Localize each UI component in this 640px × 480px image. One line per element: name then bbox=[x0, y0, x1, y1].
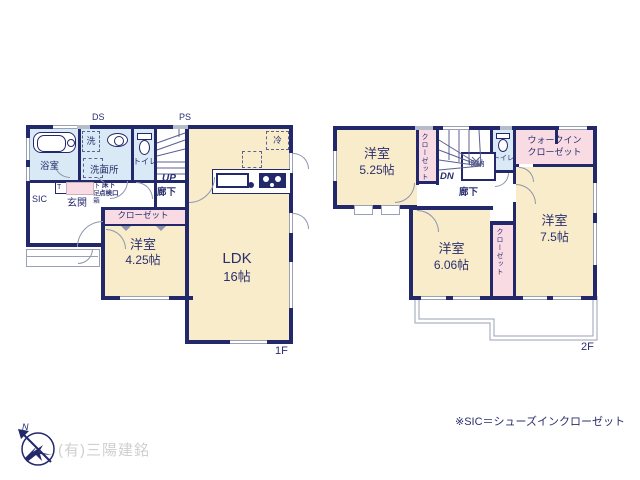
window bbox=[453, 296, 480, 300]
ldk-name: LDK bbox=[185, 251, 289, 266]
balcony-outline bbox=[409, 296, 601, 346]
hall2f-label: 廊下 bbox=[459, 188, 478, 198]
burner bbox=[275, 176, 281, 182]
duct bbox=[500, 126, 512, 130]
hall-door-arc bbox=[136, 182, 153, 199]
closet-label: クローゼット bbox=[101, 211, 185, 220]
up-label: UP bbox=[162, 174, 176, 184]
ldk-exterior-door-arc bbox=[293, 213, 309, 229]
room425-size: 4.25帖 bbox=[101, 254, 185, 266]
room606-name: 洋室 bbox=[413, 242, 490, 255]
wall bbox=[490, 221, 516, 225]
window bbox=[593, 183, 597, 213]
ds-duct bbox=[75, 125, 90, 129]
compass-icon: N bbox=[12, 421, 64, 473]
shutter-box bbox=[354, 205, 373, 215]
dn-label: DN bbox=[440, 172, 454, 182]
ldk-exterior-door-arc bbox=[293, 153, 309, 169]
north-label: N bbox=[22, 422, 29, 432]
closet-a-label: クローゼット bbox=[421, 133, 428, 179]
toilet-icon bbox=[137, 133, 152, 140]
wall bbox=[333, 205, 417, 209]
room525-name: 洋室 bbox=[337, 147, 417, 160]
wall bbox=[416, 181, 439, 184]
floor-plan-page: DS PS bbox=[0, 0, 640, 480]
fridge-label: 冷 bbox=[266, 136, 289, 145]
window bbox=[523, 296, 547, 300]
company-name: (有)三陽建銘 bbox=[58, 443, 150, 458]
duct-label-ds: DS bbox=[92, 113, 105, 122]
bifold-mark bbox=[121, 226, 131, 231]
shoe-cabinet bbox=[66, 182, 94, 195]
floor2-label: 2F bbox=[581, 342, 594, 353]
window bbox=[230, 340, 267, 344]
entrance-door-arc bbox=[77, 221, 103, 247]
wall bbox=[105, 224, 185, 226]
duct bbox=[415, 126, 433, 130]
wall bbox=[185, 129, 189, 340]
bathtub-drain bbox=[67, 139, 75, 147]
wall bbox=[409, 206, 493, 210]
wic-label-1: ウォークイン bbox=[516, 136, 593, 145]
toilet2f-door-arc bbox=[495, 173, 509, 187]
window bbox=[120, 296, 169, 300]
floor1-plan: DS PS bbox=[26, 125, 293, 344]
cupboard-space bbox=[242, 151, 262, 168]
toilet2f-label: トイレ bbox=[493, 155, 514, 162]
kitchen-faucet bbox=[248, 182, 254, 188]
window bbox=[53, 125, 77, 129]
washroom-label: 洗面所 bbox=[90, 166, 119, 176]
wall bbox=[131, 129, 134, 180]
sic-label: SIC bbox=[32, 195, 47, 204]
ldk-area bbox=[185, 129, 289, 340]
t-label: T bbox=[57, 184, 61, 191]
inspection-label-1: 床下 bbox=[102, 183, 115, 190]
window bbox=[593, 223, 597, 265]
entrance-label: 玄関 bbox=[67, 199, 87, 209]
window bbox=[26, 167, 30, 181]
room75-name: 洋室 bbox=[516, 214, 593, 227]
window bbox=[421, 296, 446, 300]
window bbox=[559, 126, 587, 130]
wall bbox=[490, 225, 493, 296]
toilet-bowl bbox=[139, 140, 150, 155]
window bbox=[553, 296, 581, 300]
window bbox=[26, 138, 30, 160]
duct-label-ps: PS bbox=[179, 113, 191, 122]
wall bbox=[78, 129, 81, 180]
room525-size: 5.25帖 bbox=[337, 164, 417, 176]
closet-b-label: クローゼット bbox=[496, 228, 503, 294]
bifold-mark bbox=[156, 226, 166, 231]
inspection-label-2: 点検口 bbox=[99, 191, 119, 198]
toilet-bowl bbox=[498, 139, 508, 152]
ldk-size: 16帖 bbox=[185, 270, 289, 283]
washer-label: 洗 bbox=[82, 137, 100, 146]
wic-label-2: クローゼット bbox=[516, 148, 593, 157]
bathtub-inner bbox=[37, 135, 66, 152]
washbasin-bowl bbox=[114, 136, 124, 146]
shutter-box bbox=[381, 205, 400, 215]
burner bbox=[263, 176, 269, 182]
toilet-label: トイレ bbox=[133, 158, 157, 166]
room425-name: 洋室 bbox=[101, 238, 185, 251]
floor2-plan: 収納 洋室 5.25帖 クロー bbox=[333, 126, 597, 300]
floor1-label: 1F bbox=[275, 346, 288, 357]
room606-size: 6.06帖 bbox=[413, 259, 490, 271]
kitchen-sink-icon bbox=[216, 173, 249, 188]
window bbox=[289, 262, 293, 308]
shoebox-label: 下足箱 bbox=[91, 182, 98, 212]
bath-label: 浴室 bbox=[40, 162, 59, 172]
hall-label: 廊下 bbox=[157, 188, 176, 198]
wall bbox=[593, 126, 597, 300]
room75-size: 7.5帖 bbox=[516, 231, 593, 243]
burner bbox=[270, 183, 274, 187]
sic-note: ※SIC＝シューズインクローゼット bbox=[455, 417, 625, 428]
